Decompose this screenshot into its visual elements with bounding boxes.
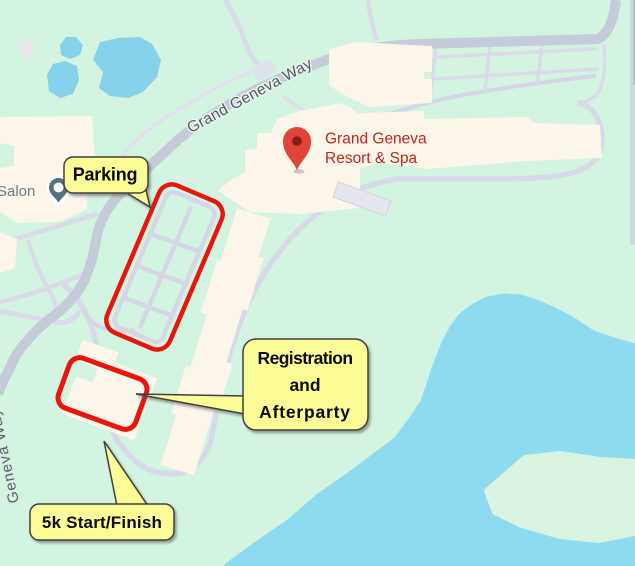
svg-text:Grand Geneva: Grand Geneva [325, 131, 427, 148]
svg-text:Afterparty: Afterparty [259, 402, 351, 422]
svg-text:Resort & Spa: Resort & Spa [325, 150, 418, 167]
svg-text:and: and [289, 375, 320, 395]
svg-text:Registration: Registration [258, 348, 353, 368]
svg-text:5k Start/Finish: 5k Start/Finish [42, 513, 162, 532]
svg-text:Parking: Parking [73, 165, 138, 185]
svg-text:Salon: Salon [0, 183, 35, 200]
